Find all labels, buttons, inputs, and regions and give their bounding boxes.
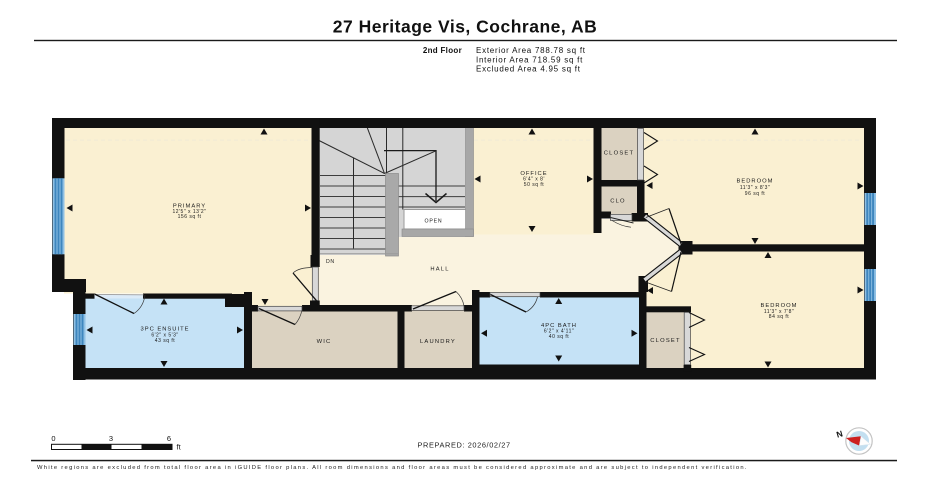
- svg-text:3: 3: [109, 434, 113, 443]
- svg-text:43 sq ft: 43 sq ft: [155, 338, 176, 344]
- svg-text:6: 6: [167, 434, 171, 443]
- svg-text:OPEN: OPEN: [425, 219, 443, 225]
- svg-text:BEDROOM: BEDROOM: [737, 179, 774, 185]
- svg-text:Excluded Area 4.95 sq ft: Excluded Area 4.95 sq ft: [476, 65, 581, 74]
- svg-text:CLOSET: CLOSET: [650, 338, 680, 344]
- svg-text:WIC: WIC: [317, 339, 332, 345]
- svg-text:40 sq ft: 40 sq ft: [549, 334, 570, 340]
- svg-text:HALL: HALL: [430, 267, 449, 273]
- svg-text:White regions are excluded fro: White regions are excluded from total fl…: [37, 465, 748, 471]
- svg-text:LAUNDRY: LAUNDRY: [420, 339, 456, 345]
- svg-text:156 sq ft: 156 sq ft: [178, 214, 202, 220]
- svg-text:96 sq ft: 96 sq ft: [745, 191, 766, 197]
- svg-text:50 sq ft: 50 sq ft: [524, 182, 545, 188]
- svg-text:27 Heritage Vis, Cochrane, AB: 27 Heritage Vis, Cochrane, AB: [333, 17, 597, 37]
- svg-text:84 sq ft: 84 sq ft: [769, 314, 790, 320]
- svg-text:ft: ft: [177, 443, 182, 452]
- svg-text:N: N: [835, 428, 844, 439]
- svg-text:Exterior Area 788.78 sq ft: Exterior Area 788.78 sq ft: [476, 46, 586, 55]
- svg-text:CLOSET: CLOSET: [604, 151, 634, 157]
- svg-text:CLO: CLO: [610, 199, 626, 205]
- svg-text:Interior Area 718.59 sq ft: Interior Area 718.59 sq ft: [476, 55, 583, 64]
- svg-text:PREPARED: 2026/02/27: PREPARED: 2026/02/27: [418, 441, 511, 450]
- svg-text:DN: DN: [326, 259, 335, 265]
- svg-text:0: 0: [51, 434, 55, 443]
- svg-text:2nd Floor: 2nd Floor: [423, 46, 462, 55]
